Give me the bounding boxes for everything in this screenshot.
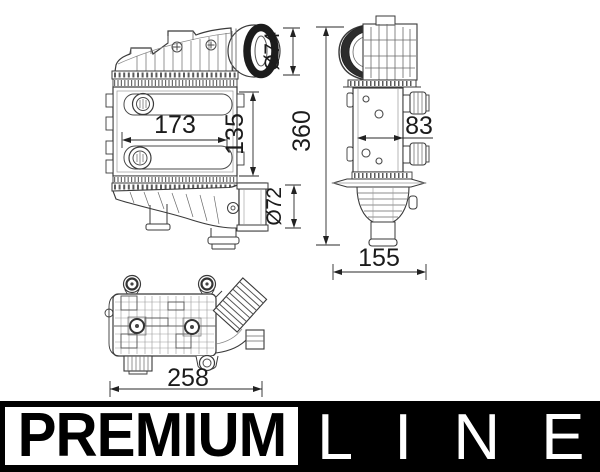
dim-label-overall-length: 258 [167, 364, 209, 392]
dim-label-core-width: 173 [154, 111, 196, 139]
premium-line-banner: PREMIUM LINE [0, 401, 600, 472]
mounting-boss [199, 276, 216, 296]
dim-label-core-depth: 83 [405, 112, 433, 140]
angled-duct-cap [213, 278, 266, 332]
hose-fitting-lower [403, 143, 429, 165]
premium-label: PREMIUM [17, 407, 286, 465]
line-label-area: LINE [298, 401, 600, 472]
premium-box: PREMIUM [5, 407, 298, 465]
dim-label-overall-height: 360 [288, 110, 316, 152]
lower-tank [113, 183, 268, 249]
dim-label-inlet-diameter: Ø74 [261, 32, 284, 71]
product-technical-drawing-page: 173 135 Ø74 Ø72 [0, 0, 600, 472]
top-view [105, 276, 267, 375]
dim-label-outlet-diameter: Ø72 [263, 187, 286, 225]
mounting-boss [124, 276, 141, 296]
hose-fitting-upper [403, 92, 429, 114]
technical-drawing: 173 135 Ø74 Ø72 [0, 0, 600, 401]
dim-label-overall-depth: 155 [358, 244, 400, 272]
dim-label-core-height: 135 [221, 113, 249, 155]
line-label: LINE [317, 404, 600, 469]
